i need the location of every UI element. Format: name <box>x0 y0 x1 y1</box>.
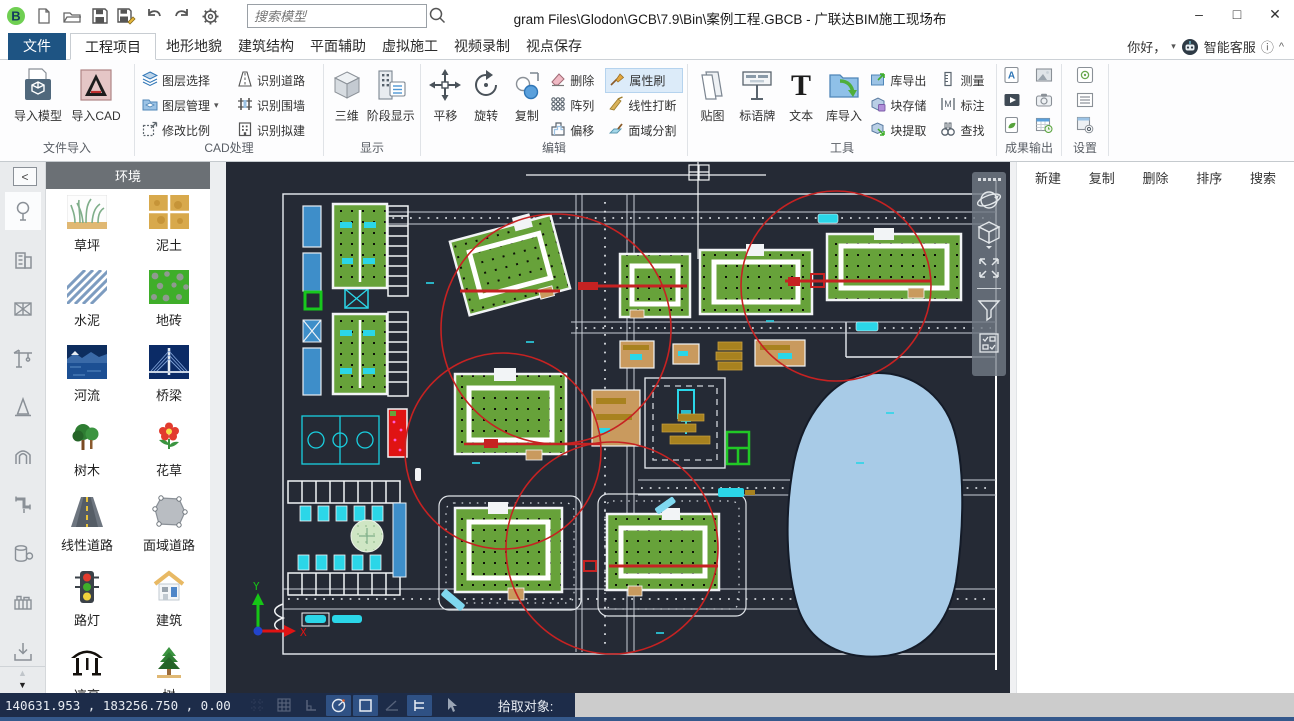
river-icon <box>67 345 107 379</box>
drawing-canvas[interactable]: Y X <box>226 162 1010 693</box>
group-tools: 贴图 标语牌 T 文本 <box>688 60 996 160</box>
svg-text:M: M <box>945 99 953 109</box>
category-environment-tree-icon[interactable] <box>9 196 37 226</box>
library-item-floor-tile[interactable]: 地砖 <box>128 264 210 339</box>
group-settings: 设置 <box>1062 60 1108 160</box>
linear-break-button[interactable]: 线性打断 <box>605 93 683 118</box>
grid-dots-toggle-icon[interactable] <box>245 695 270 716</box>
decal-button[interactable]: 贴图 <box>692 64 733 124</box>
sort-button[interactable]: 排序 <box>1196 168 1222 187</box>
import-model-button[interactable]: 导入模型 <box>13 64 63 124</box>
system-settings-button[interactable] <box>1073 114 1097 139</box>
redo-button[interactable] <box>170 4 194 28</box>
close-button[interactable]: ✕ <box>1256 0 1294 28</box>
pan-button[interactable]: 平移 <box>425 64 466 124</box>
library-item-area-road[interactable]: 面域道路 <box>128 489 210 564</box>
traffic-light-icon <box>67 570 107 604</box>
toolbar-drag-handle[interactable] <box>978 175 1001 183</box>
tab-file[interactable]: 文件 <box>8 33 66 60</box>
greeting-label[interactable]: 你好， <box>1127 37 1166 56</box>
undo-button[interactable] <box>142 4 166 28</box>
phase-display-button[interactable]: 阶段显示 <box>365 64 416 124</box>
brush-icon <box>609 71 625 90</box>
ribbon-tab-bar: 文件 工程项目 地形地貌 建筑结构 平面辅助 虚拟施工 视频录制 视点保存 你好… <box>0 33 1294 60</box>
angle-snap-toggle-icon[interactable] <box>380 695 405 716</box>
offset-icon <box>550 121 566 140</box>
library-item-river[interactable]: 河流 <box>46 339 128 414</box>
flower-icon <box>149 420 189 454</box>
group-cad-process: 图层选择 图层管理 ▾ 修改比例 识别道路 <box>135 60 323 160</box>
library-import-icon <box>826 66 862 104</box>
export-schedule-button[interactable] <box>1032 114 1058 139</box>
leaf-doc-icon <box>1003 116 1021 137</box>
layer-manage-button[interactable]: 图层管理 ▾ <box>139 93 234 118</box>
orbit-view-icon[interactable] <box>974 183 1004 217</box>
library-item-street-lamp[interactable]: 路灯 <box>46 564 128 639</box>
category-pipe-icon[interactable] <box>9 490 37 520</box>
schedule-icon <box>1035 116 1053 137</box>
eraser-icon <box>550 71 566 90</box>
search-icon[interactable] <box>428 6 446 29</box>
delete-item-button[interactable]: 删除 <box>1142 168 1168 187</box>
new-button[interactable]: 新建 <box>1035 168 1061 187</box>
svg-text:Y: Y <box>253 580 260 593</box>
filter-icon[interactable] <box>974 292 1004 326</box>
pavilion-icon <box>67 645 107 679</box>
rotate-icon <box>469 66 503 104</box>
library-import-button[interactable]: 库导入 <box>821 64 868 124</box>
export-doc-button[interactable]: A <box>1000 64 1026 89</box>
robot-icon <box>1181 38 1199 56</box>
tab-project[interactable]: 工程项目 <box>70 33 156 60</box>
save-as-button[interactable] <box>114 4 138 28</box>
phase-building-icon <box>373 66 409 104</box>
image-icon <box>1035 66 1053 87</box>
options-gear-icon <box>1076 66 1094 87</box>
svg-text:X: X <box>300 626 307 639</box>
checklist-icon[interactable] <box>974 326 1004 360</box>
group-label: 编辑 <box>421 139 687 156</box>
property-brush-button[interactable]: 属性刷 <box>605 68 683 93</box>
collapse-ribbon-icon[interactable]: ^ <box>1279 41 1284 53</box>
category-building-icon[interactable] <box>9 245 37 275</box>
group-label: 设置 <box>1062 139 1108 156</box>
recognize-fence-button[interactable]: 识别围墙 <box>234 93 319 118</box>
cursor-mode-icon <box>446 697 460 713</box>
linear-road-icon <box>67 495 107 529</box>
view-toolbar <box>972 172 1006 376</box>
rotate-snap-toggle-icon[interactable] <box>326 695 351 716</box>
video-icon <box>1003 91 1021 112</box>
delete-button[interactable]: 删除 <box>547 68 605 93</box>
parallel-snap-toggle-icon[interactable] <box>407 695 432 716</box>
cement-icon <box>67 270 107 304</box>
grass-icon <box>67 195 107 229</box>
window-gear-icon <box>1076 116 1094 137</box>
floor-tile-icon <box>149 270 189 304</box>
object-snap-toggle-icon[interactable] <box>353 695 378 716</box>
scroll-up-icon[interactable]: ▲ <box>0 666 45 679</box>
trees-icon <box>67 420 107 454</box>
new-file-button[interactable] <box>32 4 56 28</box>
group-label: 成果输出 <box>997 139 1061 156</box>
window-border <box>0 717 1294 721</box>
cube-3d-icon <box>330 66 364 104</box>
copy-item-button[interactable]: 复制 <box>1089 168 1115 187</box>
copy-icon <box>510 66 544 104</box>
group-label: 工具 <box>688 139 996 156</box>
import-cad-icon <box>78 66 114 104</box>
library-item-linear-road[interactable]: 线性道路 <box>46 489 128 564</box>
right-panel: 新建 复制 删除 排序 搜索 <box>1016 162 1294 693</box>
save-button[interactable] <box>88 4 112 28</box>
group-label: 文件导入 <box>0 139 134 156</box>
scroll-down-icon[interactable]: ▼ <box>0 679 45 691</box>
panel-collapse-button[interactable]: < <box>13 167 37 186</box>
block-extract-icon <box>870 121 886 140</box>
library-item-building[interactable]: 建筑 <box>128 564 210 639</box>
decal-icon <box>695 66 729 104</box>
library-item-flowers[interactable]: 花草 <box>128 414 210 489</box>
tab-viewpoint-save[interactable]: 视点保存 <box>512 33 596 60</box>
category-scaffold-icon[interactable] <box>9 294 37 324</box>
move-arrows-icon <box>428 66 462 104</box>
status-bar: 140631.953 , 183256.750 , 0.00 <box>0 693 1294 717</box>
layer-select-button[interactable]: 图层选择 <box>139 68 234 93</box>
group-label: CAD处理 <box>135 139 323 156</box>
binoculars-icon <box>940 121 956 140</box>
library-item-cement[interactable]: 水泥 <box>46 264 128 339</box>
import-model-icon <box>20 66 56 104</box>
category-sidebar: < <box>0 162 46 693</box>
view-cube-icon[interactable] <box>974 217 1004 251</box>
site-plan-drawing: Y X <box>226 162 1010 692</box>
app-logo-icon: B <box>4 4 28 28</box>
pine-tree-icon <box>149 645 189 679</box>
doc-A-icon: A <box>1003 66 1021 87</box>
road-icon <box>237 71 253 90</box>
svg-text:B: B <box>11 9 20 24</box>
panel-splitter[interactable] <box>210 162 226 693</box>
import-cad-button[interactable]: 导入CAD <box>71 64 121 124</box>
block-store-icon <box>870 96 886 115</box>
pick-object-label: 拾取对象: <box>498 696 554 715</box>
group-file-import: 导入模型 导入CAD 文件导入 <box>0 60 134 160</box>
library-panel: 环境 草坪 泥土 水泥 地砖 <box>46 162 210 693</box>
knife-icon <box>608 96 624 115</box>
library-item-bridge[interactable]: 桥梁 <box>128 339 210 414</box>
ruler-icon <box>940 71 956 90</box>
smart-service-button[interactable]: 智能客服 <box>1204 37 1256 56</box>
ortho-toggle-icon[interactable] <box>299 695 324 716</box>
category-workbench-icon[interactable] <box>9 588 37 618</box>
three-d-button[interactable]: 三维 <box>328 64 365 124</box>
library-item-trees[interactable]: 树木 <box>46 414 128 489</box>
zoom-extents-icon[interactable] <box>974 251 1004 285</box>
open-file-button[interactable] <box>60 4 84 28</box>
layers-icon <box>142 71 158 90</box>
dimension-icon: M <box>940 96 956 115</box>
library-item-tree[interactable]: 树 <box>128 639 210 693</box>
svg-text:T: T <box>791 69 811 102</box>
dimension-button[interactable]: M 标注 <box>937 93 992 118</box>
grid-toggle-icon[interactable] <box>272 695 297 716</box>
rotate-button[interactable]: 旋转 <box>466 64 507 124</box>
dropdown-icon[interactable]: ▾ <box>214 100 219 111</box>
title-bar: B gram Files\Glodon\GCB\7.9\Bin\案例工程.GBC… <box>0 0 1294 33</box>
category-import-tray-icon[interactable] <box>9 637 37 667</box>
recognize-road-button[interactable]: 识别道路 <box>234 68 319 93</box>
ribbon: 导入模型 导入CAD 文件导入 图层选择 <box>0 60 1294 162</box>
measure-button[interactable]: 测量 <box>937 68 992 93</box>
layer-folder-icon <box>142 96 158 115</box>
screenshot-button[interactable] <box>1032 89 1058 114</box>
export-report-button[interactable] <box>1000 114 1026 139</box>
search-input[interactable] <box>247 4 427 28</box>
lake-shape <box>788 373 963 657</box>
camera-icon <box>1035 91 1053 112</box>
group-label: 显示 <box>324 139 420 156</box>
dirt-icon <box>149 195 189 229</box>
library-item-grass[interactable]: 草坪 <box>46 189 128 264</box>
list-settings-button[interactable] <box>1073 89 1097 114</box>
list-icon <box>1076 91 1094 112</box>
options-button[interactable] <box>1073 64 1097 89</box>
house-icon <box>149 570 189 604</box>
maximize-button[interactable]: □ <box>1218 0 1256 28</box>
text-button[interactable]: T 文本 <box>782 64 821 124</box>
group-edit: 平移 旋转 复制 删除 <box>421 60 687 160</box>
panel-title: 环境 <box>46 162 210 189</box>
greeting-caret-icon[interactable]: ▾ <box>1171 41 1176 52</box>
category-barrel-icon[interactable] <box>9 539 37 569</box>
block-store-button[interactable]: 块存储 <box>867 93 937 118</box>
signboard-icon <box>739 66 775 104</box>
array-button[interactable]: 阵列 <box>547 93 605 118</box>
export-video-button[interactable] <box>1000 89 1026 114</box>
category-arch-icon[interactable] <box>9 441 37 471</box>
library-export-icon <box>870 71 886 90</box>
library-export-button[interactable]: 库导出 <box>867 68 937 93</box>
copy-button[interactable]: 复制 <box>506 64 547 124</box>
minimize-button[interactable]: – <box>1180 0 1218 28</box>
window-title: gram Files\Glodon\GCB\7.9\Bin\案例工程.GBCB … <box>470 8 990 28</box>
group-display: 三维 阶段显示 显示 <box>324 60 420 160</box>
library-item-dirt[interactable]: 泥土 <box>128 189 210 264</box>
scale-icon <box>142 121 158 140</box>
application-window: B gram Files\Glodon\GCB\7.9\Bin\案例工程.GBC… <box>0 0 1294 721</box>
group-output: A 成果输出 <box>997 60 1061 160</box>
category-crane-icon[interactable] <box>9 343 37 373</box>
signboard-button[interactable]: 标语牌 <box>733 64 782 124</box>
settings-gear-icon[interactable] <box>198 4 222 28</box>
area-road-icon <box>149 495 189 529</box>
category-cone-icon[interactable] <box>9 392 37 422</box>
trowel-icon <box>608 121 624 140</box>
array-grid-icon <box>550 96 566 115</box>
info-icon[interactable]: ⓘ <box>1261 37 1274 56</box>
bridge-icon <box>149 345 189 379</box>
library-item-pavilion[interactable]: 凉亭 <box>46 639 128 693</box>
fence-icon <box>237 96 253 115</box>
cursor-coordinates: 140631.953 , 183256.750 , 0.00 <box>5 698 231 713</box>
text-T-icon: T <box>786 66 816 104</box>
export-image-button[interactable] <box>1032 64 1058 89</box>
svg-text:A: A <box>1008 71 1015 82</box>
planned-building-icon <box>237 121 253 140</box>
search-list-button[interactable]: 搜索 <box>1250 168 1276 187</box>
